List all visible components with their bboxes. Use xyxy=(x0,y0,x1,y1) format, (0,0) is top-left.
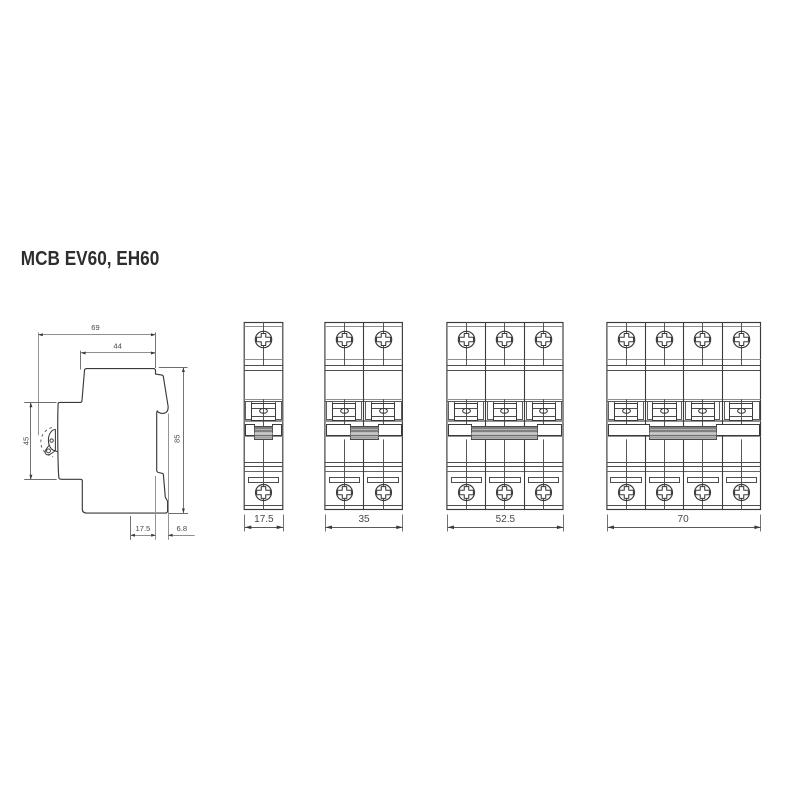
svg-text:45: 45 xyxy=(22,437,31,445)
svg-text:17.5: 17.5 xyxy=(254,514,274,525)
svg-text:70: 70 xyxy=(678,514,690,525)
svg-text:85: 85 xyxy=(173,435,182,443)
svg-text:17.5: 17.5 xyxy=(136,524,151,533)
svg-text:35: 35 xyxy=(358,514,370,525)
svg-text:6.8: 6.8 xyxy=(177,524,188,533)
svg-text:44: 44 xyxy=(113,342,121,351)
svg-text:MCB EV60, EH60: MCB EV60, EH60 xyxy=(21,248,160,270)
svg-text:69: 69 xyxy=(91,323,99,332)
svg-text:52.5: 52.5 xyxy=(496,514,516,525)
